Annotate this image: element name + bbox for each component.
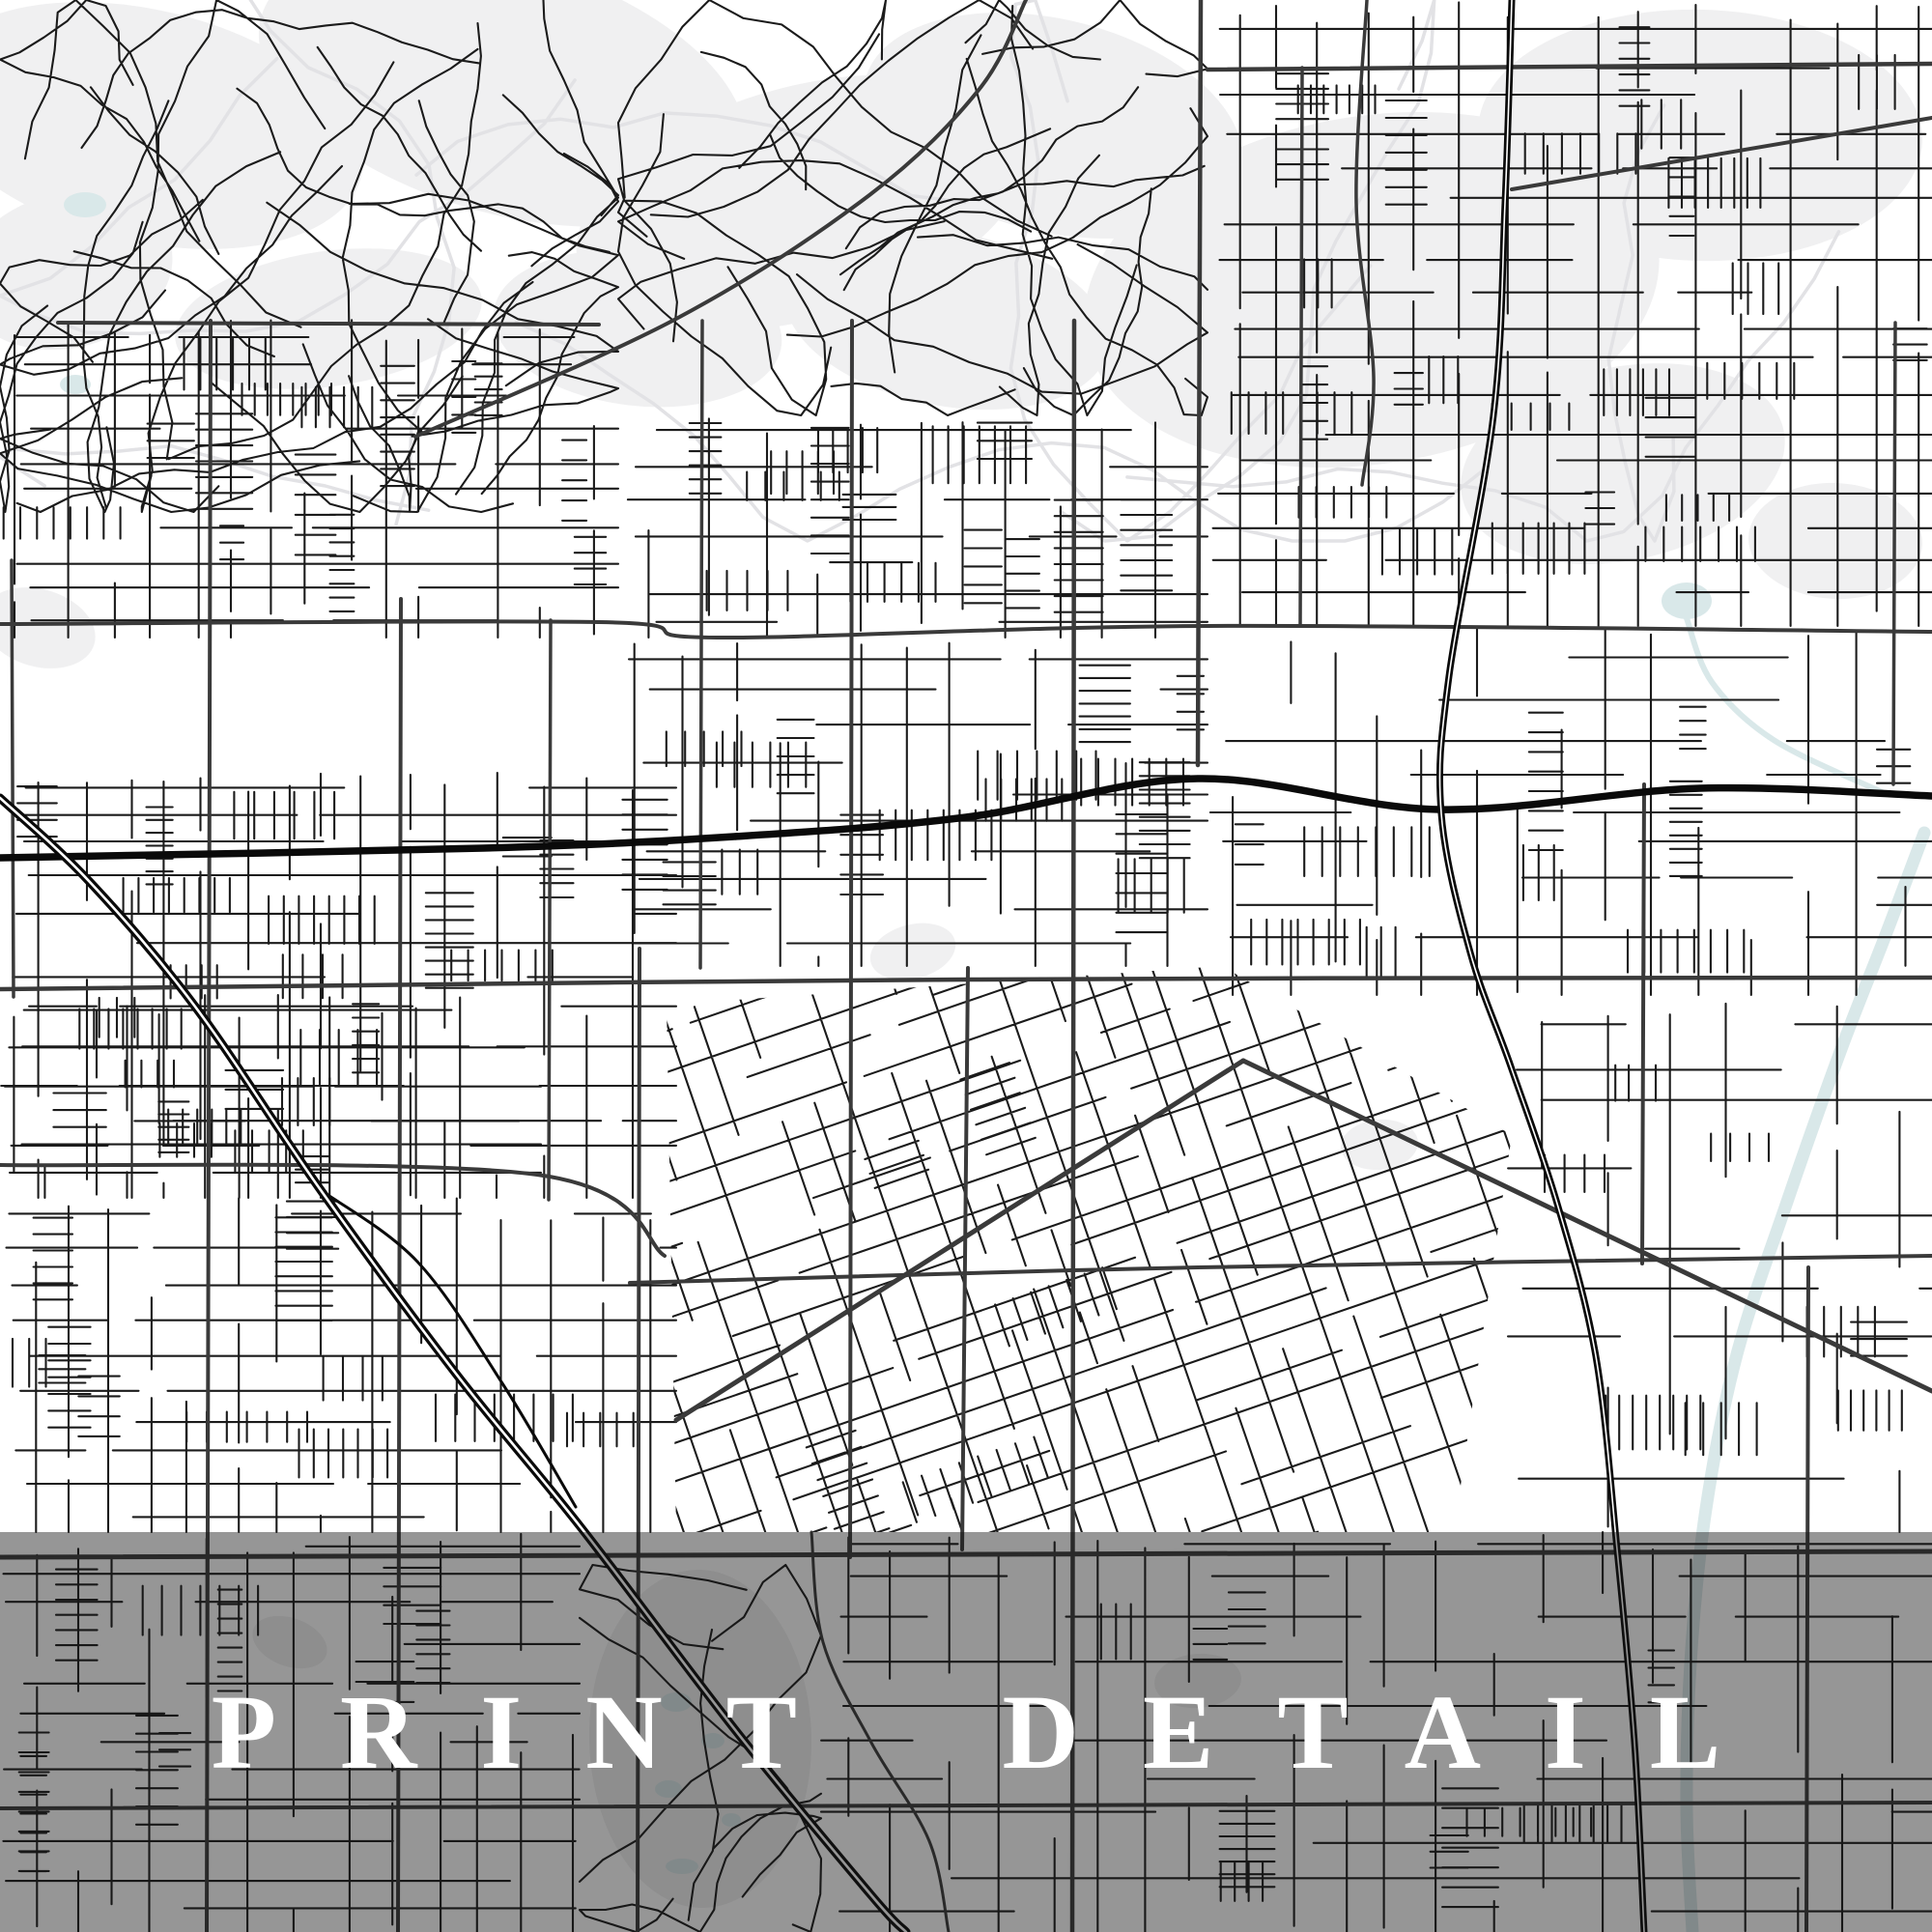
map-print-detail: PRINT DETAIL [0, 0, 1932, 1932]
print-detail-overlay: PRINT DETAIL [0, 1532, 1932, 1932]
print-detail-label: PRINT DETAIL [148, 1679, 1784, 1785]
